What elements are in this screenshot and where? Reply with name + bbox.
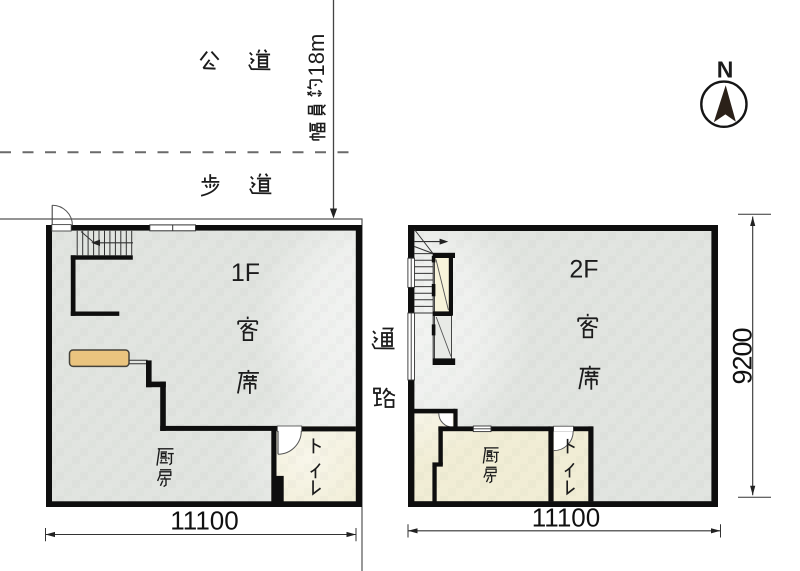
svg-text:18m: 18m (304, 34, 329, 77)
svg-text:11100: 11100 (532, 502, 600, 532)
svg-text:N: N (717, 57, 734, 83)
svg-text:11100: 11100 (170, 506, 238, 536)
svg-text:9200: 9200 (728, 328, 758, 384)
svg-text:1F: 1F (231, 259, 260, 287)
svg-text:2F: 2F (569, 256, 598, 284)
